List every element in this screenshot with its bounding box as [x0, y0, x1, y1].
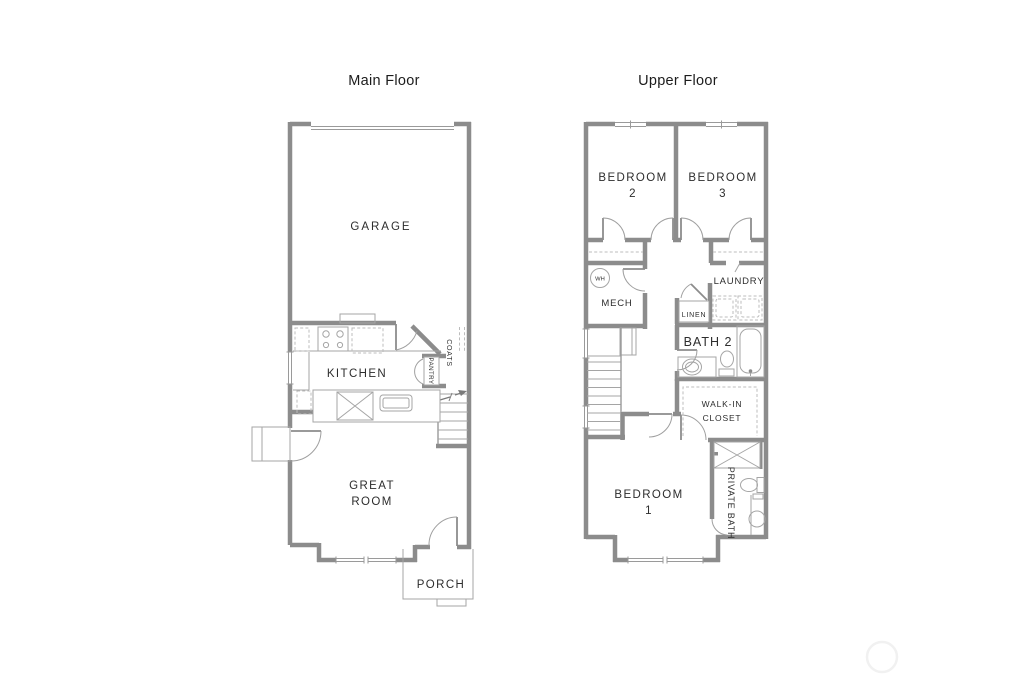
walkin-label-line2: CLOSET — [703, 413, 742, 423]
floor-plan-page: Main Floor Upper Floor — [0, 0, 1024, 684]
great-room-bay-windows — [336, 557, 396, 564]
bedroom3-label-line2: 3 — [719, 188, 727, 200]
private-bath-shower — [714, 442, 760, 468]
watermark-circle — [867, 642, 897, 672]
mech-door — [623, 269, 645, 291]
main-floor-plan: GARAGE KITCHEN GREAT ROOM PORCH COATS PA… — [252, 122, 473, 606]
walkin-closet-shelving — [683, 387, 757, 436]
linen-door — [681, 284, 707, 300]
porch-step — [437, 599, 466, 606]
main-stairs — [438, 390, 468, 444]
floor-plans-svg: GARAGE KITCHEN GREAT ROOM PORCH COATS PA… — [0, 0, 1024, 684]
refrigerator — [352, 328, 383, 353]
bedroom1-door — [649, 414, 672, 437]
bedroom2-label-line1: BEDROOM — [598, 172, 667, 184]
private-bath-label: PRIVATE BATH — [726, 467, 736, 540]
garage-label: GARAGE — [350, 221, 411, 233]
bedroom1-bay-windows — [628, 557, 703, 564]
garage-door — [311, 127, 454, 130]
bedroom3-closet-door — [729, 218, 751, 240]
bedroom3-door — [681, 218, 703, 240]
walkin-label-line1: WALK-IN — [702, 399, 743, 409]
side-entry-door — [291, 431, 321, 461]
private-bath-toilet — [741, 478, 765, 493]
kitchen-island — [313, 390, 440, 422]
great-room-label-line2: ROOM — [351, 496, 392, 508]
kitchen-label: KITCHEN — [327, 368, 387, 380]
porch-label: PORCH — [417, 579, 466, 591]
water-heater-label: WH — [595, 277, 605, 283]
bedroom1-label-line1: BEDROOM — [614, 489, 683, 501]
water-heater: WH — [591, 269, 610, 288]
kitchen-window — [287, 352, 294, 384]
side-entry-stoop — [252, 427, 290, 461]
bath2-tub — [737, 326, 764, 377]
cooktop — [318, 327, 348, 351]
bedroom3-label-line1: BEDROOM — [688, 172, 757, 184]
bath2-label: BATH 2 — [684, 335, 733, 349]
coats-closet-rod — [460, 327, 465, 352]
bedroom1-label-line2: 1 — [645, 505, 653, 517]
upper-cabinet — [295, 328, 309, 351]
private-bath-door — [712, 519, 727, 535]
front-door — [429, 517, 457, 546]
mech-label: MECH — [601, 298, 632, 309]
coats-label: COATS — [445, 339, 452, 367]
bedroom3-window — [706, 121, 737, 129]
pantry-label: PANTRY — [427, 358, 434, 385]
great-room-label-line1: GREAT — [349, 480, 395, 492]
bedroom2-closet-door — [603, 218, 625, 240]
laundry-leader-line — [735, 263, 740, 272]
bedroom2-window — [615, 121, 646, 129]
pantry-door — [415, 359, 423, 384]
dryer — [738, 296, 762, 320]
bath2-toilet — [719, 351, 734, 376]
private-bath-sink — [749, 494, 765, 535]
laundry-label: LAUNDRY — [714, 276, 765, 287]
bedroom2-door — [651, 218, 673, 240]
upper-floor-plan: WH — [583, 121, 769, 564]
bedroom2-label-line2: 2 — [629, 188, 637, 200]
bath2-vanity — [678, 357, 716, 377]
linen-label: LINEN — [682, 312, 707, 319]
washer — [713, 296, 736, 320]
